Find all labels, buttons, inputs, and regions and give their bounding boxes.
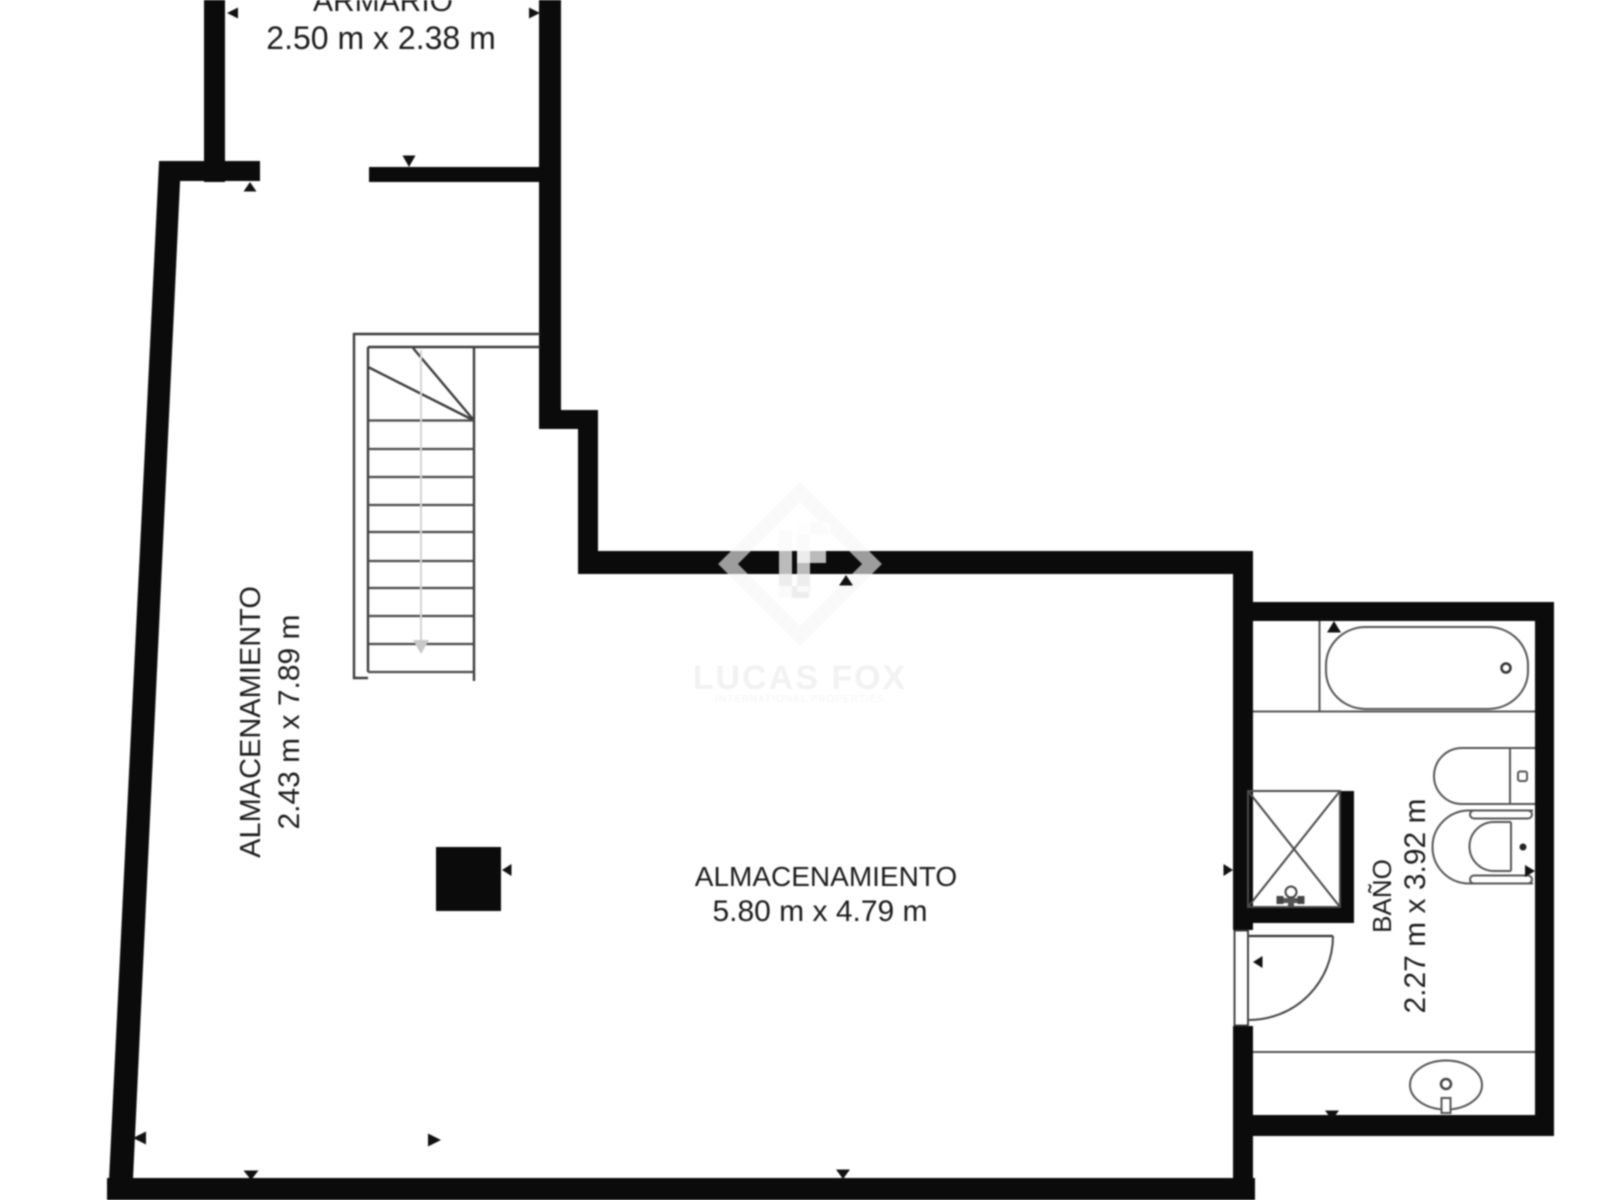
svg-text:ALMACENAMIENTO: ALMACENAMIENTO <box>235 586 267 858</box>
svg-text:2.43 m x 7.89 m: 2.43 m x 7.89 m <box>273 614 306 829</box>
svg-text:BAÑO: BAÑO <box>1367 859 1397 933</box>
svg-text:5.80 m x 4.79 m: 5.80 m x 4.79 m <box>712 895 927 928</box>
svg-text:ARMARIO: ARMARIO <box>313 0 453 18</box>
svg-text:INTERNATIONAL PROPERTIES: INTERNATIONAL PROPERTIES <box>715 694 885 705</box>
svg-text:LUCAS FOX: LUCAS FOX <box>693 659 907 697</box>
svg-text:2.50 m x 2.38 m: 2.50 m x 2.38 m <box>266 20 495 56</box>
svg-text:ALMACENAMIENTO: ALMACENAMIENTO <box>695 861 957 892</box>
svg-text:2.27 m x 3.92 m: 2.27 m x 3.92 m <box>1399 798 1432 1013</box>
